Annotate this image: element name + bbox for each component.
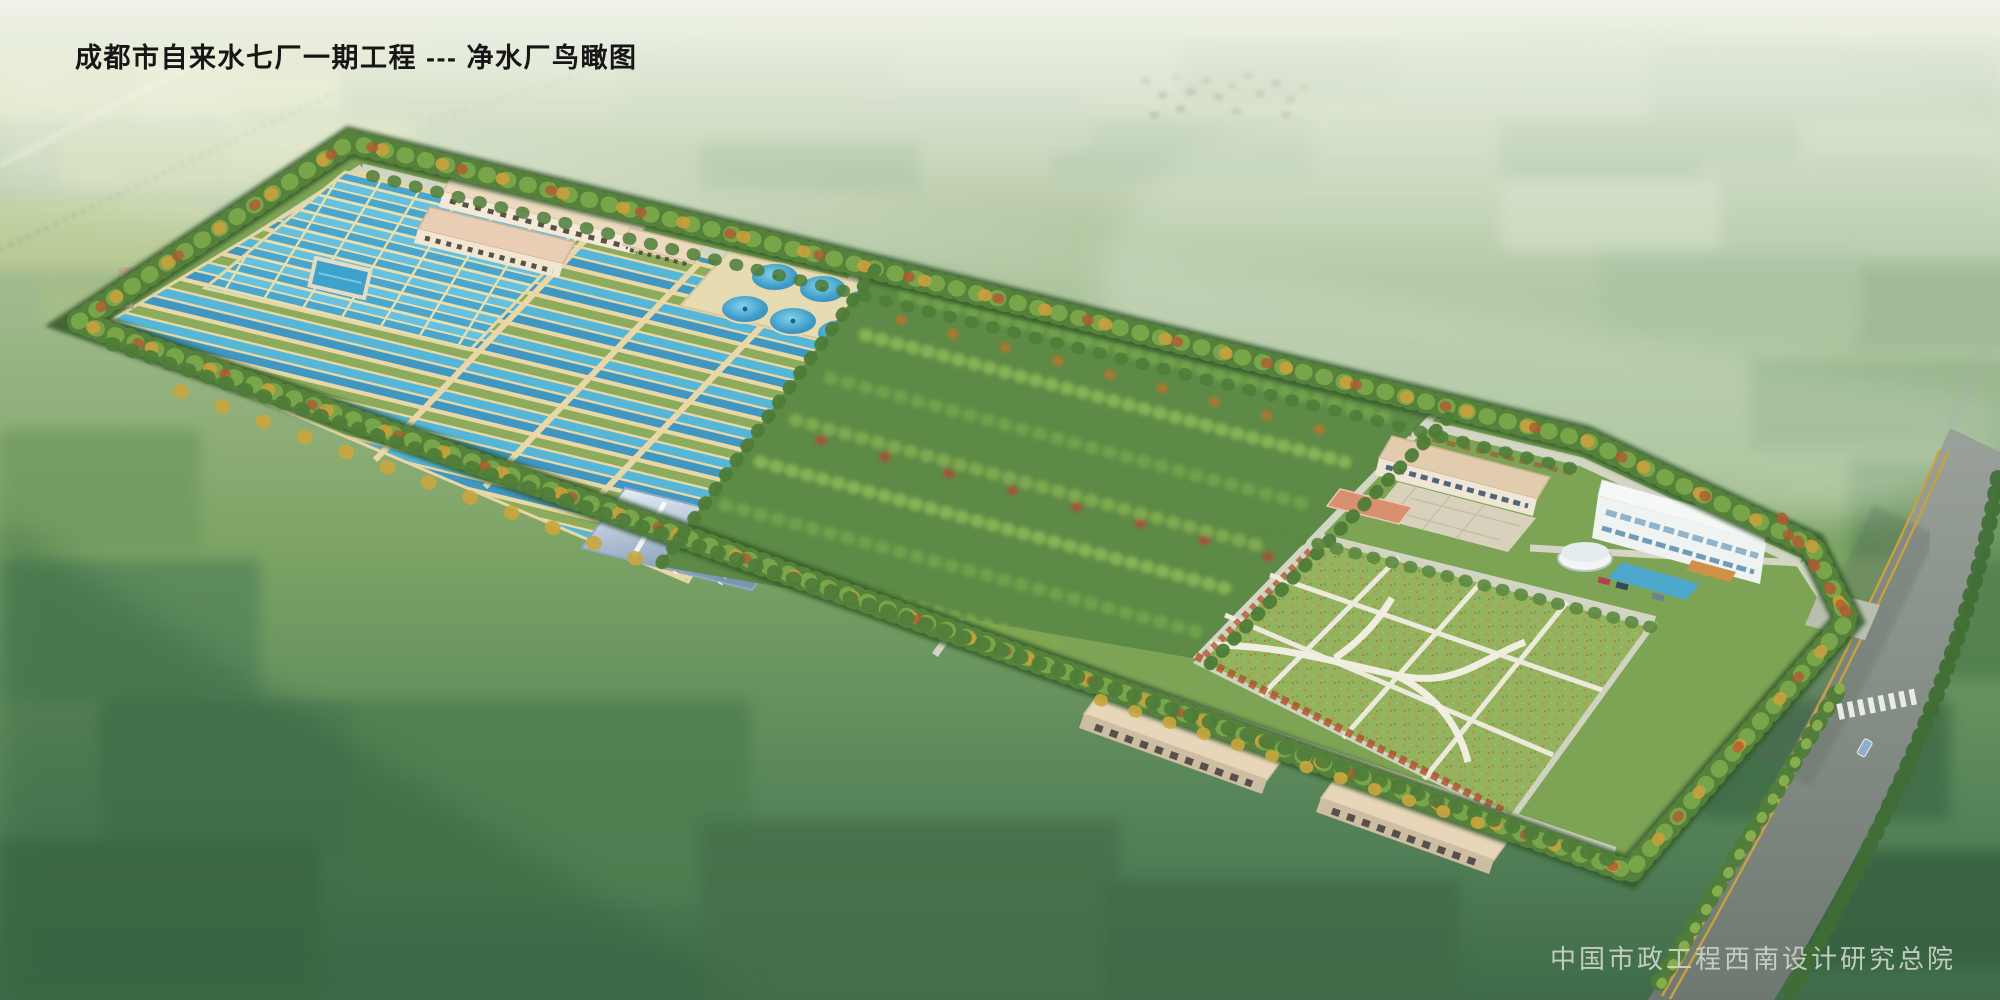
round-pavilion (1558, 542, 1612, 571)
design-institute-credit: 中国市政工程西南设计研究总院 (1550, 939, 1956, 976)
aerial-rendering: 成都市自来水七厂一期工程 --- 净水厂鸟瞰图 中国市政工程西南设计研究总院 (0, 0, 2000, 1000)
title-caption: 成都市自来水七厂一期工程 --- 净水厂鸟瞰图 (75, 36, 637, 75)
rendering-canvas (0, 0, 2000, 1000)
